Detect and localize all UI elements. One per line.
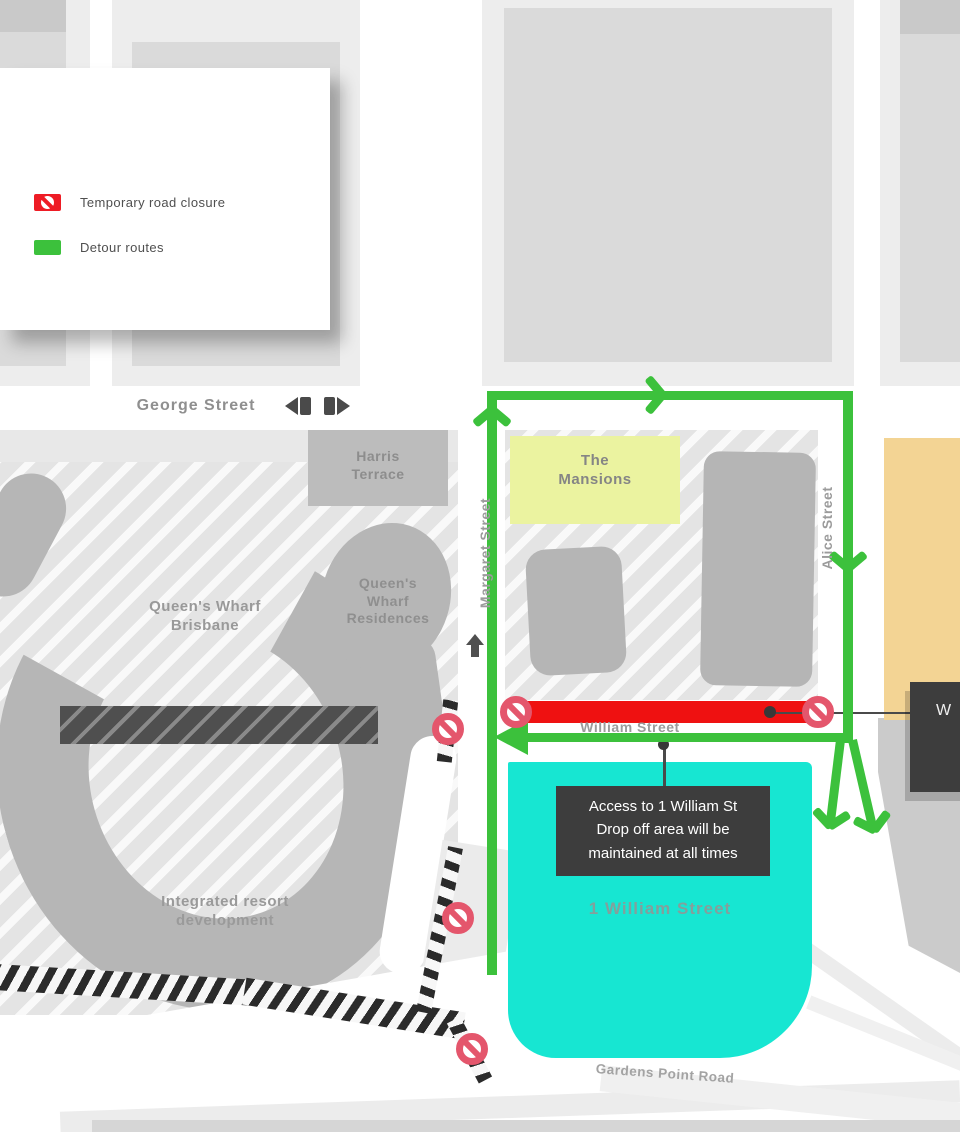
legend-item-label: Detour routes xyxy=(80,240,164,255)
access-note-line: Access to 1 William St xyxy=(556,795,770,818)
harris-terrace-label: Harris Terrace xyxy=(343,448,413,483)
centre-building xyxy=(700,451,816,687)
closed-road-segment xyxy=(60,706,378,744)
road-closure-map: George Street Margaret Street Alice Stre… xyxy=(0,0,960,1132)
no-entry-icon xyxy=(802,696,834,728)
access-note-line: Drop off area will be xyxy=(556,818,770,841)
bottom-road-strip xyxy=(92,1120,960,1132)
no-entry-icon xyxy=(442,902,474,934)
callout-dot xyxy=(764,706,776,718)
one-william-street-label: 1 William Street xyxy=(530,898,790,919)
access-note-line: maintained at all times xyxy=(556,842,770,865)
detour-arrow-right-icon xyxy=(642,376,670,414)
centre-building xyxy=(525,546,627,677)
callout-line xyxy=(663,745,666,789)
legend: Temporary road closure Detour routes xyxy=(0,68,330,330)
no-entry-icon xyxy=(500,696,532,728)
william-street-callout: W xyxy=(910,682,960,792)
no-entry-legend-icon xyxy=(34,194,61,211)
one-way-left-icon xyxy=(285,396,313,416)
no-entry-icon xyxy=(432,713,464,745)
one-way-right-icon xyxy=(322,396,350,416)
city-block xyxy=(0,0,66,32)
william-street-callout-text: W xyxy=(936,702,951,720)
detour-arrow-up-icon xyxy=(473,402,511,430)
no-entry-icon xyxy=(456,1033,488,1065)
city-block xyxy=(504,8,832,362)
tan-building xyxy=(884,438,960,720)
legend-item-label: Temporary road closure xyxy=(80,195,225,210)
callout-line xyxy=(770,712,912,714)
detour-line-george-street xyxy=(487,391,853,400)
the-mansions-label: The Mansions xyxy=(550,452,640,490)
george-street-label: George Street xyxy=(110,396,282,416)
one-way-up-icon xyxy=(466,634,484,658)
margaret-street-label: Margaret Street xyxy=(477,468,493,638)
queens-wharf-brisbane-label: Queen's Wharf Brisbane xyxy=(120,598,290,636)
access-note-callout: Access to 1 William St Drop off area wil… xyxy=(556,786,770,876)
william-street-label: William Street xyxy=(545,719,715,737)
detour-swatch-icon xyxy=(34,240,61,255)
detour-arrow-down-icon xyxy=(810,804,851,836)
alice-street-label: Alice Street xyxy=(819,443,835,613)
city-block xyxy=(900,8,960,362)
integrated-resort-label: Integrated resort development xyxy=(130,893,320,931)
city-block xyxy=(900,0,960,34)
queens-wharf-residences-label: Queen's Wharf Residences xyxy=(346,575,430,628)
